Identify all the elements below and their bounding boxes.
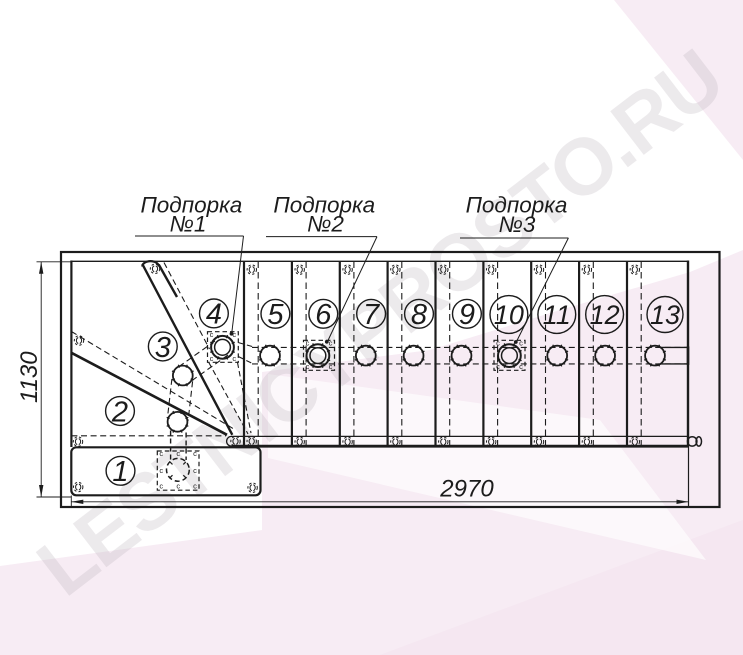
svg-text:9: 9 [459,299,475,331]
svg-text:№1: №1 [170,211,207,236]
svg-text:c: c [210,354,214,363]
svg-text:2: 2 [111,396,128,428]
svg-text:c: c [496,339,500,348]
svg-text:c: c [159,449,163,458]
svg-text:1: 1 [112,456,128,488]
svg-text:c: c [306,339,310,348]
svg-text:7: 7 [363,299,381,331]
svg-text:№2: №2 [307,211,344,236]
svg-text:12: 12 [590,300,620,330]
svg-text:c: c [329,362,333,371]
svg-text:c: c [193,449,197,458]
svg-text:1130: 1130 [16,351,43,403]
svg-text:c: c [176,482,180,491]
svg-text:8: 8 [411,299,427,331]
svg-text:№3: №3 [499,212,536,237]
svg-text:c: c [306,362,310,371]
svg-text:c: c [496,362,500,371]
svg-text:3: 3 [155,332,171,364]
svg-text:11: 11 [543,300,571,330]
svg-text:c: c [193,482,197,491]
svg-text:c: c [519,339,523,348]
svg-text:c: c [232,354,236,363]
svg-text:5: 5 [267,299,284,331]
svg-text:c: c [193,466,197,475]
svg-text:c: c [210,330,214,339]
svg-text:13: 13 [650,300,680,330]
svg-text:c: c [159,466,163,475]
svg-text:4: 4 [206,299,222,331]
svg-text:c: c [519,362,523,371]
svg-text:6: 6 [315,299,332,331]
svg-text:c: c [329,339,333,348]
svg-text:c: c [159,482,163,491]
svg-text:10: 10 [494,300,524,330]
svg-text:c: c [176,449,180,458]
svg-text:2970: 2970 [439,476,494,503]
